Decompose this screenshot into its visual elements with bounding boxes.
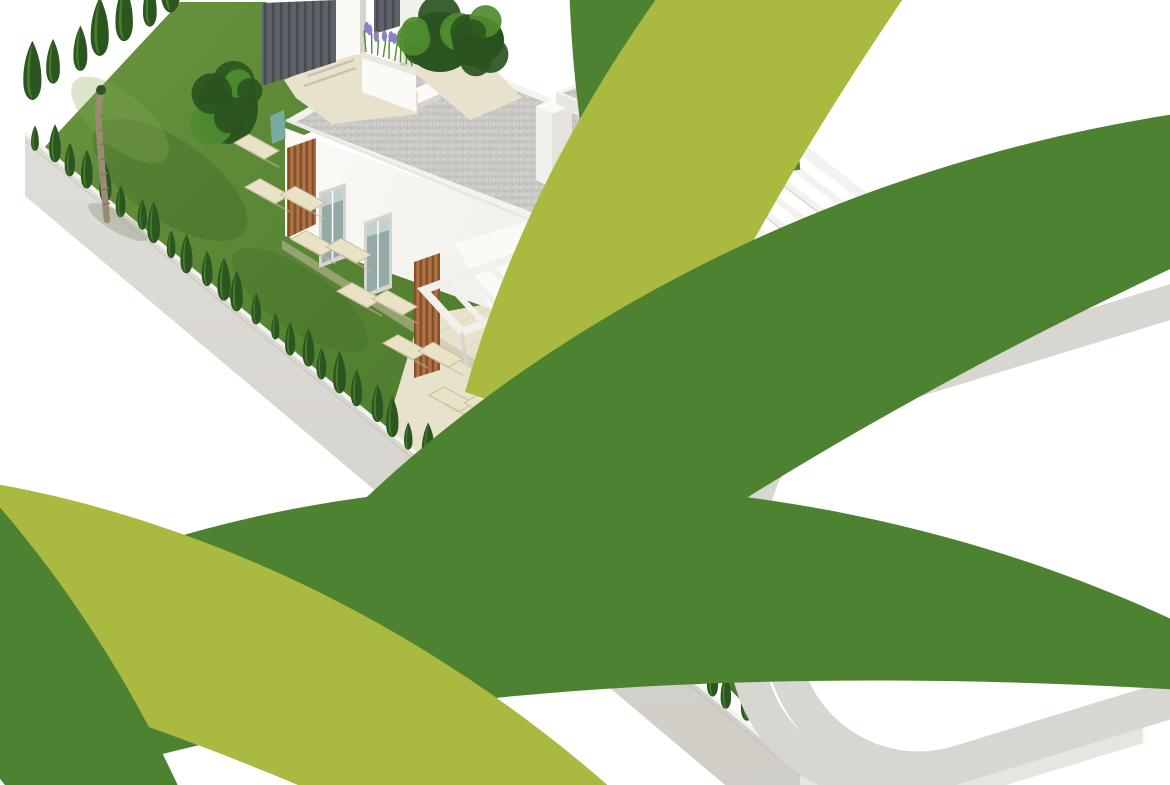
glass-panel-glimpse: [270, 110, 286, 144]
render-canvas: Isometric 3D architectural rendering of …: [0, 0, 1170, 785]
villa-site-plan-render: [0, 0, 1170, 785]
